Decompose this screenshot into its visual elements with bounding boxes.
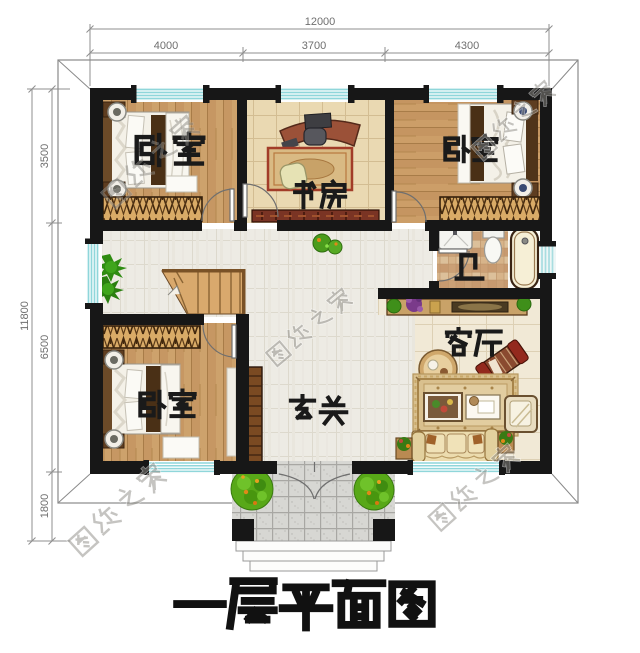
svg-text:3700: 3700: [302, 40, 326, 52]
svg-text:3500: 3500: [39, 144, 51, 168]
svg-text:4300: 4300: [455, 40, 479, 52]
svg-text:6500: 6500: [39, 335, 51, 359]
svg-text:12000: 12000: [305, 16, 336, 28]
svg-text:4000: 4000: [154, 40, 178, 52]
svg-text:11800: 11800: [19, 301, 31, 331]
svg-text:1800: 1800: [39, 494, 51, 518]
